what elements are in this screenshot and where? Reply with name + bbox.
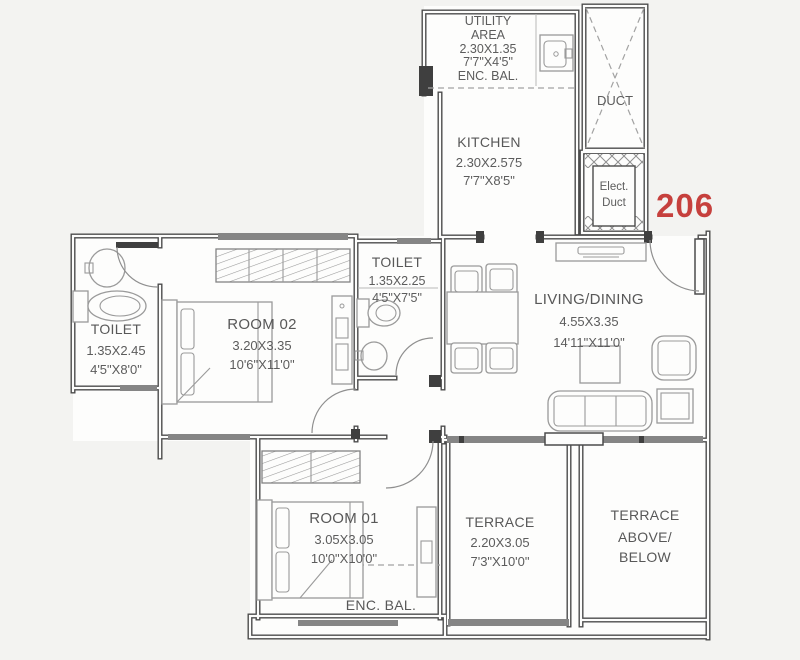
floorplan-page: UTILITY AREA 2.30X1.35 7'7"X4'5" ENC. BA…: [0, 0, 800, 660]
utility-note: ENC. BAL.: [458, 69, 518, 83]
living-dim-imperial: 14'11"X11'0": [553, 335, 625, 350]
terrace-above-label3: BELOW: [619, 549, 672, 565]
room02-wardrobe-icon: [216, 249, 350, 282]
dining-table-icon: [447, 292, 518, 344]
terrace-label: TERRACE: [466, 514, 535, 530]
floorplan-206: UTILITY AREA 2.30X1.35 7'7"X4'5" ENC. BA…: [0, 0, 800, 660]
terrace-dim-imperial: 7'3"X10'0": [470, 554, 529, 569]
room01-balcony-window: [298, 620, 398, 626]
slider-panel: [545, 433, 603, 445]
room02-top-window: [218, 233, 348, 240]
tv-console-icon: [556, 243, 646, 261]
dining-chair-icon: [486, 343, 517, 373]
kitchen-label: KITCHEN: [457, 134, 521, 150]
toilet-mid-window: [397, 238, 431, 244]
room01-dim-imperial: 10'0"X10'0": [311, 551, 378, 566]
dining-chair-icon: [451, 343, 482, 373]
dining-set-icon: [447, 264, 518, 373]
enc-bal-label: ENC. BAL.: [346, 597, 416, 613]
toilet-left-window: [120, 385, 157, 391]
room02-dresser-icon: [332, 296, 352, 384]
coffee-table-icon: [580, 346, 620, 383]
duct-label: DUCT: [597, 93, 633, 108]
room01-dim-metric: 3.05X3.05: [314, 532, 373, 547]
armchair-icon: [652, 336, 696, 380]
room02-dim-metric: 3.20X3.35: [232, 338, 291, 353]
toilet-mid-dim-metric: 1.35X2.25: [369, 274, 426, 288]
kitchen-dim-imperial: 7'7"X8'5": [463, 173, 515, 188]
room02-bottom-window: [168, 434, 250, 440]
terrace-above-label2: ABOVE/: [618, 529, 672, 545]
sofa-icon: [548, 391, 652, 431]
side-table-icon: [657, 389, 693, 423]
terrace-above-label1: TERRACE: [611, 507, 680, 523]
toilet-left-wc-icon: [73, 291, 146, 322]
toilet-mid-label: TOILET: [372, 254, 423, 270]
utility-label2: AREA: [471, 28, 506, 42]
living-dim-metric: 4.55X3.35: [559, 314, 618, 329]
utility-label: UTILITY: [465, 14, 512, 28]
room01-cabinet-icon: [417, 507, 436, 597]
utility-dim-metric: 2.30X1.35: [460, 42, 517, 56]
unit-number: 206: [656, 187, 714, 224]
utility-dim-imperial: 7'7"X4'5": [463, 55, 513, 69]
elect-duct-label2: Duct: [602, 197, 626, 209]
room02-label: ROOM 02: [227, 316, 297, 333]
toilet-left-label: TOILET: [91, 321, 142, 337]
toilet-left-dim-metric: 1.35X2.45: [86, 343, 145, 358]
room01-wardrobe-icon: [262, 451, 360, 483]
elect-duct-box: [593, 166, 635, 226]
toilet-left-door-leaf: [116, 242, 158, 248]
dining-chair-icon: [486, 264, 517, 294]
entrance-door-leaf: [695, 239, 704, 294]
elect-duct-label1: Elect.: [600, 181, 629, 193]
room02-dim-imperial: 10'6"X11'0": [229, 357, 295, 372]
room01-label: ROOM 01: [309, 510, 379, 527]
toilet-mid-dim-imperial: 4'5"X7'5": [372, 291, 422, 305]
living-label: LIVING/DINING: [534, 291, 644, 308]
terrace-railing: [448, 619, 569, 626]
toilet-left-dim-imperial: 4'5"X8'0": [90, 362, 142, 377]
terrace-dim-metric: 2.20X3.05: [470, 535, 529, 550]
kitchen-dim-metric: 2.30X2.575: [456, 155, 523, 170]
utility-sink-icon: [540, 35, 573, 71]
